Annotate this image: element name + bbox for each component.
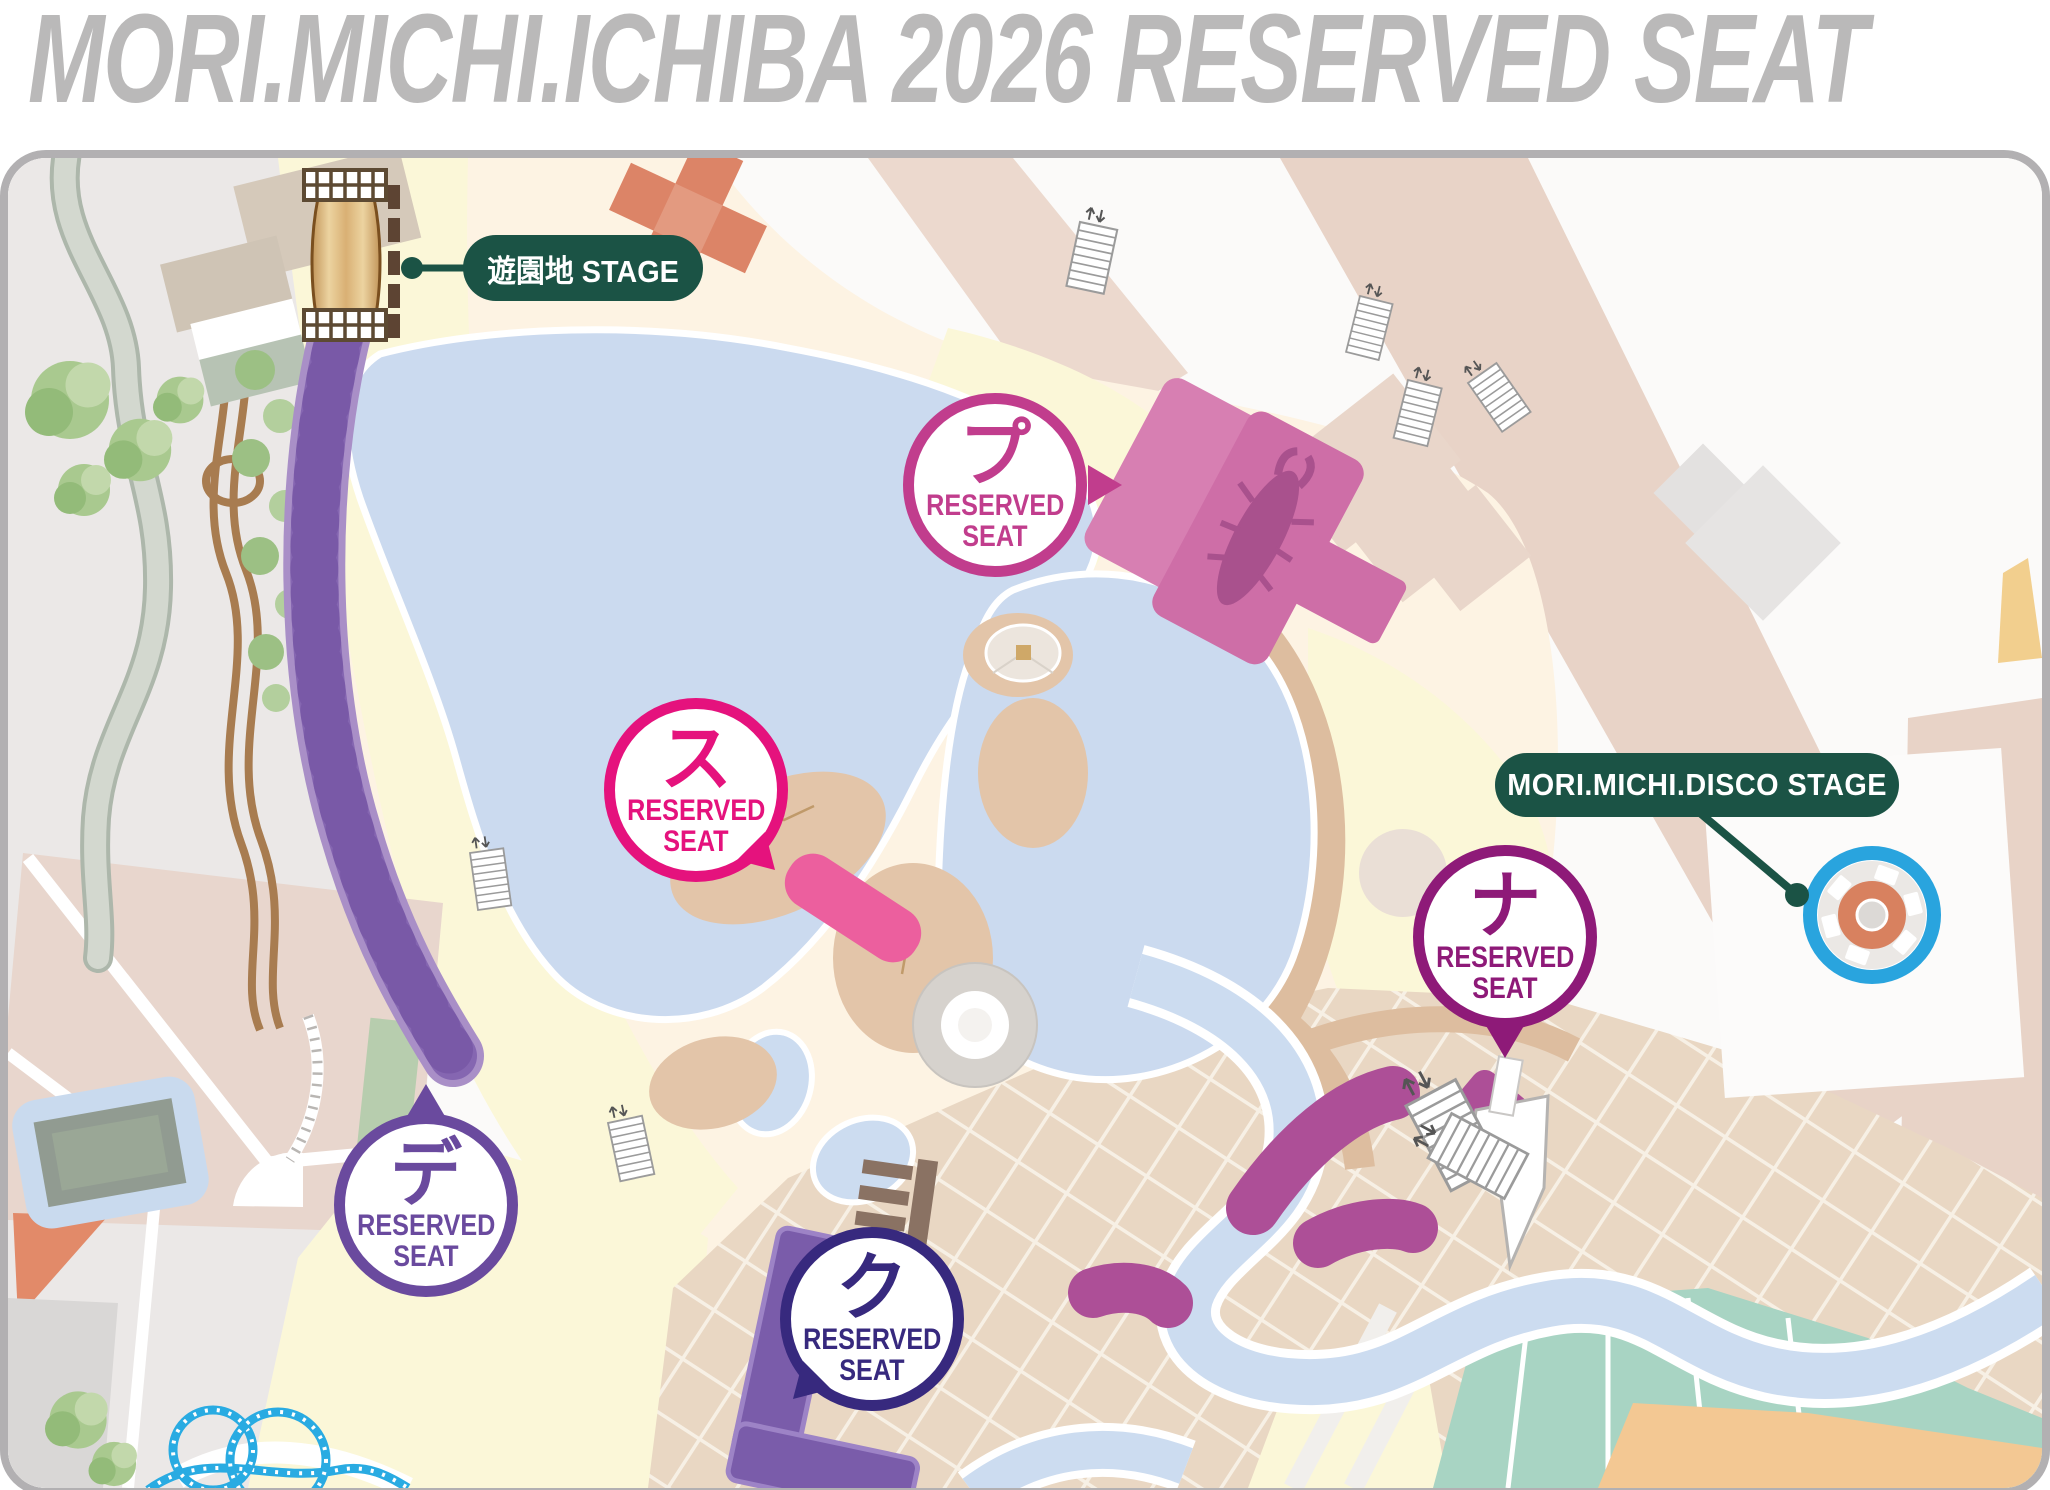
arrow-down-icon: [1485, 1024, 1525, 1058]
badge-line-2: SEAT: [1472, 973, 1537, 1004]
stage-label-disco-text: MORI.MICHI.DISCO STAGE: [1507, 767, 1887, 803]
reserved-seat-badge-de: デ RESERVED SEAT: [334, 1113, 518, 1297]
badge-letter: ス: [660, 723, 732, 796]
badge-line-1: RESERVED: [803, 1324, 941, 1355]
arrow-up-icon: [406, 1084, 446, 1118]
reserved-seat-map-page: MORI.MICHI.ICHIBA 2026 RESERVED SEAT: [0, 0, 2050, 1490]
badge-letter: デ: [390, 1138, 462, 1211]
stage-label-yuenchi-text: 遊園地 STAGE: [487, 246, 679, 291]
reserved-seat-badge-pu: プ RESERVED SEAT: [903, 393, 1087, 577]
reserved-seat-badge-su: ス RESERVED SEAT: [604, 698, 788, 882]
badge-line-1: RESERVED: [357, 1210, 495, 1241]
badge-line-1: RESERVED: [1436, 942, 1574, 973]
arrow-right-icon: [1088, 465, 1122, 505]
disco-stage-structure: [1810, 853, 1934, 977]
reserved-seat-badge-ku: ク RESERVED SEAT: [780, 1227, 964, 1411]
badge-line-2: SEAT: [839, 1355, 904, 1386]
stage-label-disco: MORI.MICHI.DISCO STAGE: [1495, 753, 1899, 817]
stage-label-yuenchi: 遊園地 STAGE: [463, 235, 703, 301]
badge-line-1: RESERVED: [627, 795, 765, 826]
park-map: 遊園地 STAGE MORI.MICHI.DISCO STAGE プ RESER…: [0, 150, 2050, 1490]
badge-line-2: SEAT: [962, 521, 1027, 552]
badge-letter: プ: [959, 418, 1031, 491]
badge-letter: ナ: [1469, 870, 1541, 943]
badge-letter: ク: [836, 1252, 908, 1325]
reserved-seat-badge-na: ナ RESERVED SEAT: [1413, 845, 1597, 1029]
map-artwork: [8, 158, 2042, 1488]
badge-line-2: SEAT: [393, 1241, 458, 1272]
page-title: MORI.MICHI.ICHIBA 2026 RESERVED SEAT: [28, 0, 1866, 122]
badge-line-2: SEAT: [663, 826, 728, 857]
badge-line-1: RESERVED: [926, 490, 1064, 521]
